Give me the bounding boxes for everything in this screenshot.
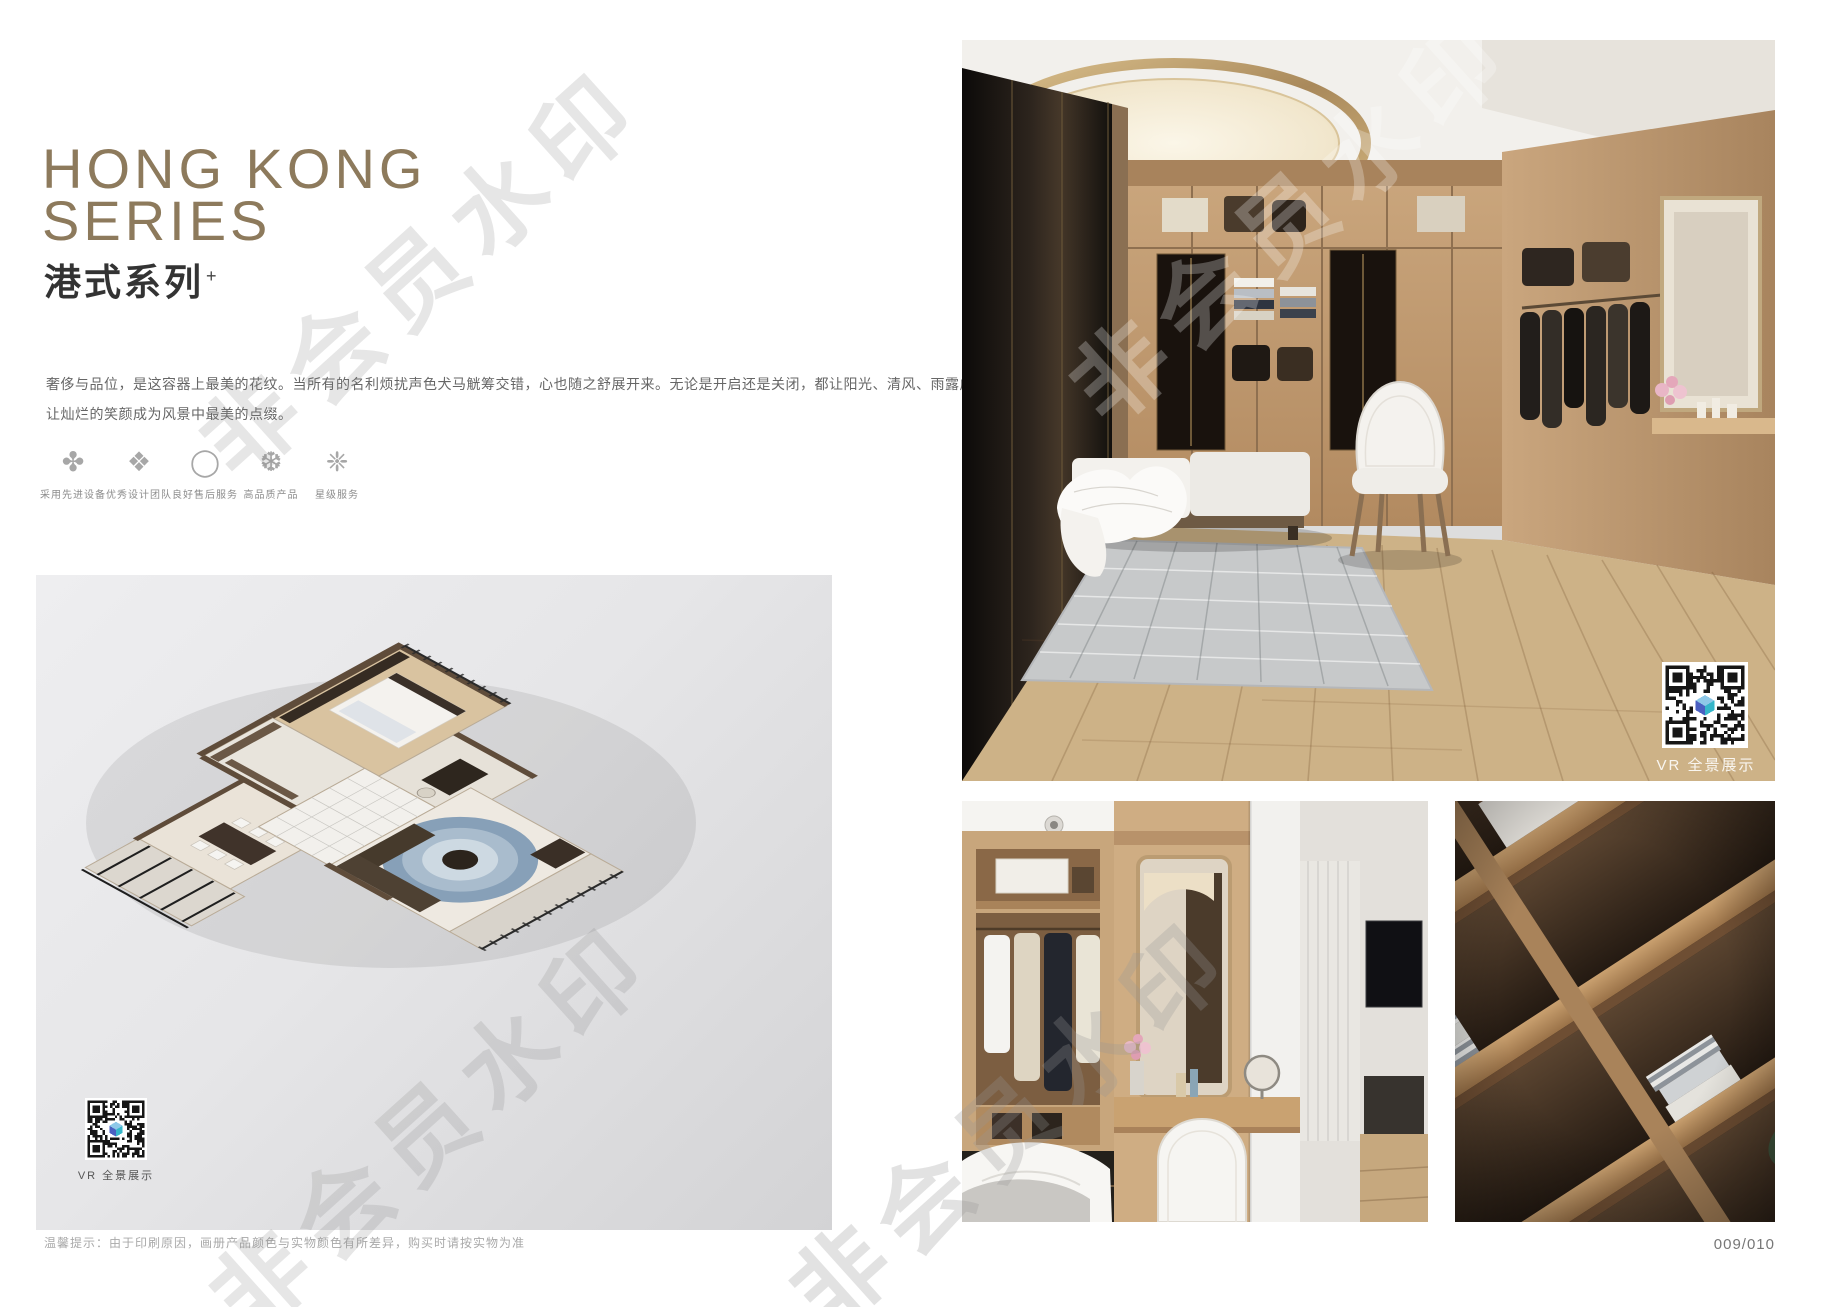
title-line-1: HONG KONG <box>42 143 426 195</box>
ring-ornament-icon: ◯ <box>172 446 238 480</box>
catalog-page: HONG KONG SERIES 港式系列+ 奢侈与品位，是这容器上最美的花纹。… <box>0 0 1836 1307</box>
dressing-area-photo <box>962 801 1428 1222</box>
floorplan-panel: VR 全景展示 <box>36 575 832 1230</box>
page-number: 009/010 <box>1640 1236 1775 1253</box>
feature-label: 良好售后服务 <box>172 486 238 501</box>
footer-disclaimer: 温馨提示：由于印刷原因，画册产品颜色与实物颜色有所差异，购买时请按实物为准 <box>44 1234 525 1251</box>
main-photo-vr-label: VR 全景展示 <box>1656 756 1755 774</box>
title-plus-mark: + <box>206 266 220 286</box>
floorplan-vr-qr-code <box>85 1098 147 1160</box>
series-title-english: HONG KONG SERIES <box>42 143 426 247</box>
feature-item: ✤ 采用先进设备 <box>40 446 106 501</box>
bedroom-doorway-view <box>1300 801 1428 1222</box>
feature-item: ◯ 良好售后服务 <box>172 446 238 501</box>
feature-list: ✤ 采用先进设备 ❖ 优秀设计团队 ◯ 良好售后服务 ❆ 高品质产品 ❈ 星级服… <box>40 446 370 501</box>
feature-label: 高品质产品 <box>238 486 304 501</box>
snowflake-ornament-icon: ❆ <box>238 446 304 480</box>
feature-label: 采用先进设备 <box>40 486 106 501</box>
feature-item: ❈ 星级服务 <box>304 446 370 501</box>
feature-item: ❖ 优秀设计团队 <box>106 446 172 501</box>
column <box>1250 801 1300 1222</box>
floorplan-vr-label: VR 全景展示 <box>54 1167 178 1183</box>
title-line-2: SERIES <box>42 195 426 247</box>
series-title-chinese: 港式系列+ <box>44 252 220 306</box>
main-photo-vr-qr-code <box>1662 662 1748 748</box>
diamond-ornament-icon: ❖ <box>106 446 172 480</box>
walk-in-closet-main-photo: VR 全景展示 <box>962 40 1775 781</box>
vanity-mirror <box>1138 857 1230 1097</box>
feature-item: ❆ 高品质产品 <box>238 446 304 501</box>
feature-label: 优秀设计团队 <box>106 486 172 501</box>
vanity-table <box>1652 418 1775 434</box>
vanity-chair <box>1158 1119 1246 1222</box>
watermark-text: 非会员水印 <box>165 32 669 505</box>
feature-label: 星级服务 <box>304 486 370 501</box>
star-ornament-icon: ❈ <box>304 446 370 480</box>
petal-ornament-icon: ✤ <box>40 446 106 480</box>
shelf-detail-photo <box>1455 801 1775 1222</box>
title-cn-text: 港式系列 <box>44 262 204 303</box>
isometric-floorplan-render <box>36 575 832 1230</box>
